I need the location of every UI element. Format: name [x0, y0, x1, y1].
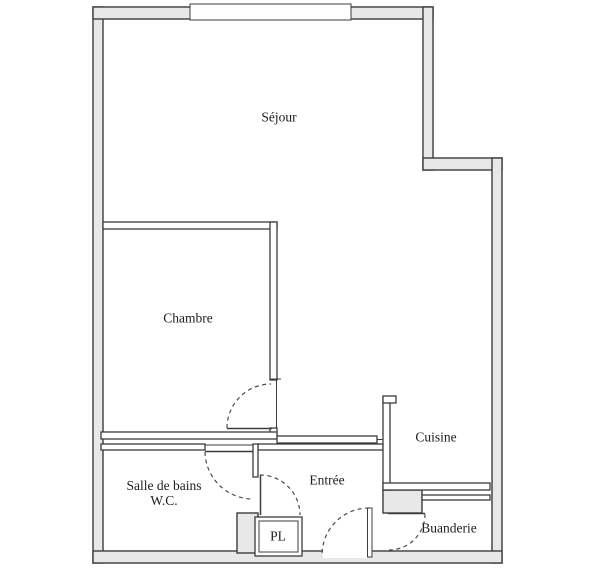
wall-left [93, 7, 103, 563]
wall-right [492, 158, 502, 563]
room-label-buanderie: Buanderie [421, 521, 476, 536]
entrance-door-leaf [368, 508, 373, 557]
entrance-opening [323, 550, 368, 558]
wall-block-kitchen [383, 490, 422, 513]
room-label-entree: Entrée [309, 473, 344, 488]
wall-cuisine-left [383, 397, 390, 490]
wall-bathroom-top [101, 444, 205, 450]
wall-entree-top [258, 444, 383, 450]
wall-chambre-bottom [101, 432, 277, 439]
bathroom-door-arc [205, 452, 252, 499]
wall-chambre-top [103, 222, 277, 229]
wall-bathroom-entree-divider [253, 444, 258, 477]
room-label-wc: W.C. [150, 493, 177, 508]
buanderie-door-arc [389, 514, 425, 550]
room-label-salle-de-bains-line1: Salle de bains [127, 478, 202, 493]
wall-buanderie-top [422, 495, 490, 500]
floor-plan: Séjour Chambre Cuisine Salle de bains W.… [0, 0, 601, 577]
chambre-door-arc [227, 384, 271, 428]
wall-sejour-bottom [277, 436, 377, 443]
window [190, 4, 351, 20]
room-label-cuisine: Cuisine [415, 430, 456, 445]
wall-chambre-right-upper [270, 222, 277, 380]
entrance-door-arc [322, 508, 369, 555]
wall-cuisine-bottom [383, 483, 490, 490]
floor-plan-drawing [0, 0, 601, 577]
wall-cuisine-left-cap [383, 396, 396, 403]
room-label-chambre: Chambre [163, 311, 213, 326]
wall-step [423, 158, 502, 170]
room-label-pl: PL [270, 529, 286, 544]
wc-entree-door-arc [260, 475, 300, 515]
room-label-salle-de-bains: Salle de bains W.C. [127, 478, 202, 508]
room-label-sejour: Séjour [261, 110, 296, 125]
wall-upper-right [423, 7, 433, 170]
